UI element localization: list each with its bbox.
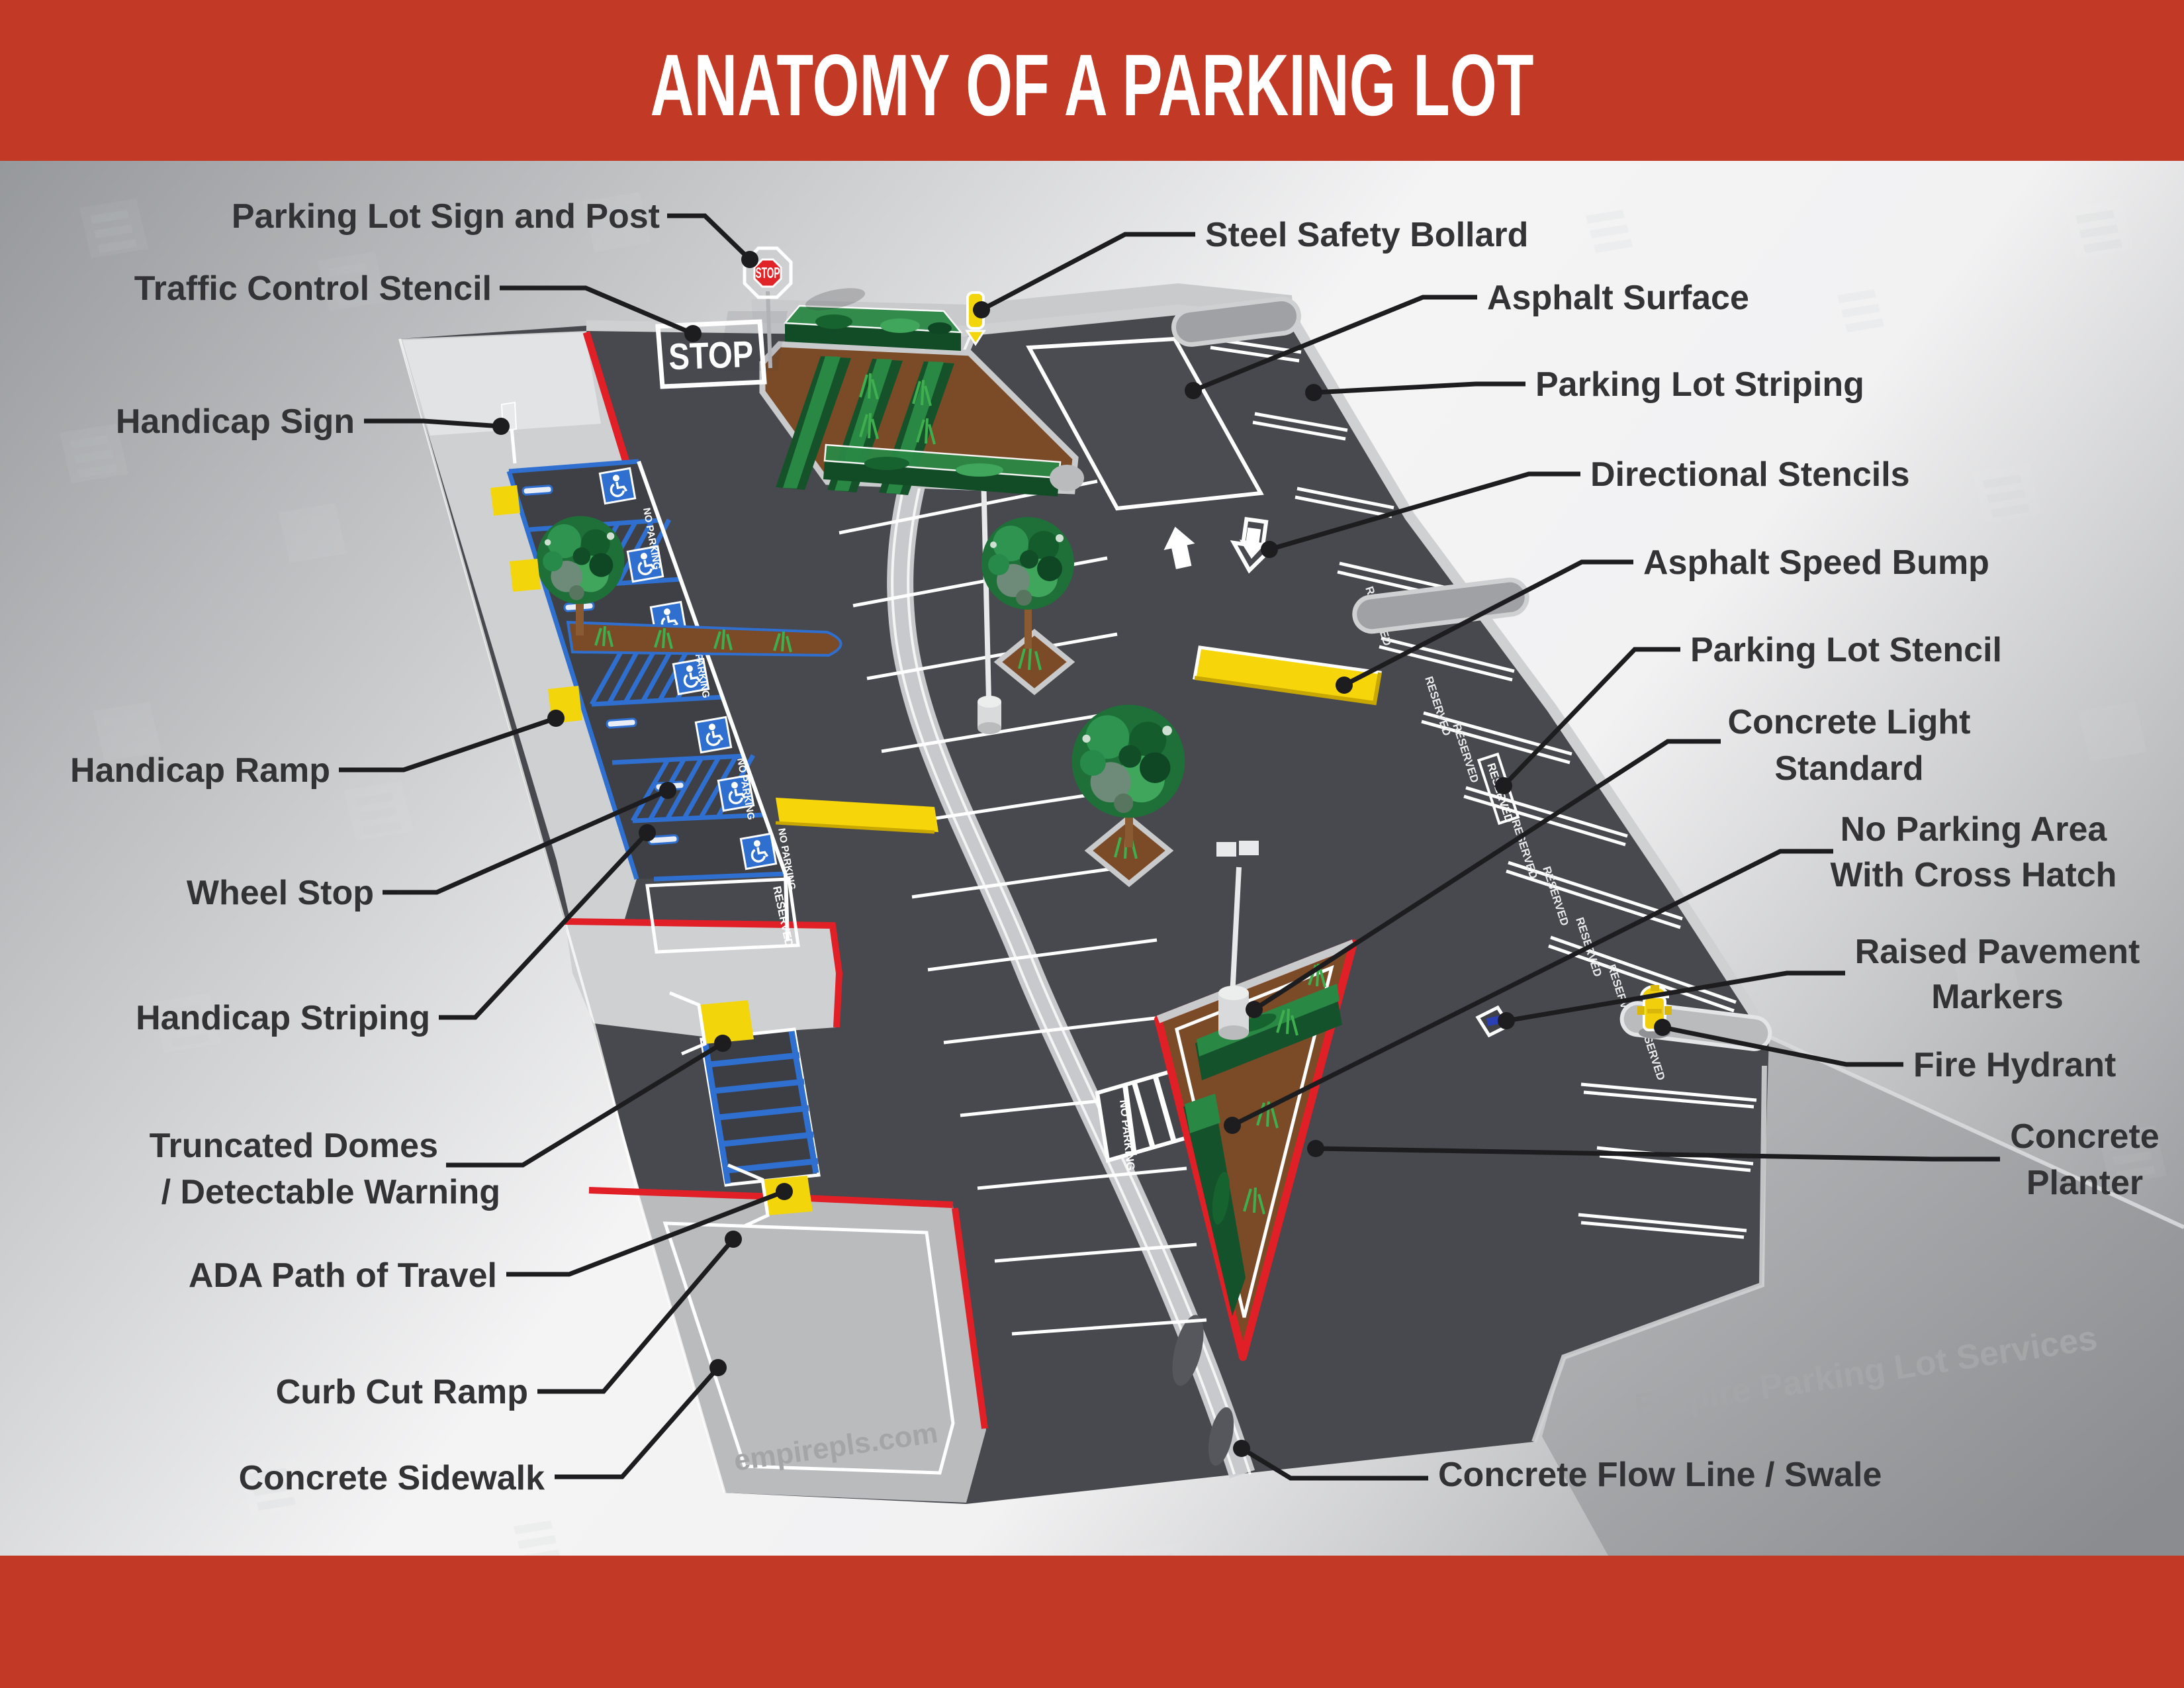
svg-text:Standard: Standard: [1774, 749, 1923, 788]
svg-text:Asphalt Surface: Asphalt Surface: [1487, 279, 1749, 317]
svg-text:Handicap Striping: Handicap Striping: [136, 999, 430, 1037]
svg-text:/ Detectable Warning: / Detectable Warning: [161, 1173, 500, 1211]
svg-text:Steel Safety Bollard: Steel Safety Bollard: [1205, 216, 1528, 254]
svg-text:Truncated Domes: Truncated Domes: [150, 1127, 438, 1165]
svg-text:Parking Lot Sign and Post: Parking Lot Sign and Post: [232, 197, 660, 236]
svg-text:Concrete Sidewalk: Concrete Sidewalk: [239, 1459, 545, 1497]
svg-text:Concrete Flow Line / Swale: Concrete Flow Line / Swale: [1438, 1456, 1882, 1494]
svg-text:Raised Pavement: Raised Pavement: [1855, 933, 2140, 971]
svg-text:Concrete Light: Concrete Light: [1728, 703, 1971, 741]
svg-text:Planter: Planter: [2026, 1164, 2143, 1202]
svg-text:No Parking Area: No Parking Area: [1841, 810, 2108, 849]
svg-text:Markers: Markers: [1931, 978, 2063, 1016]
svg-text:Directional Stencils: Directional Stencils: [1590, 455, 1910, 494]
svg-text:Fire Hydrant: Fire Hydrant: [1913, 1046, 2116, 1084]
svg-text:With Cross Hatch: With Cross Hatch: [1831, 856, 2117, 894]
svg-text:Wheel Stop: Wheel Stop: [187, 874, 374, 912]
svg-text:STOP: STOP: [668, 333, 754, 377]
svg-text:Traffic Control Stencil: Traffic Control Stencil: [134, 269, 492, 308]
svg-text:Parking Lot Striping: Parking Lot Striping: [1535, 365, 1864, 404]
svg-text:ANATOMY OF A PARKING LOT: ANATOMY OF A PARKING LOT: [651, 36, 1534, 134]
svg-text:ADA Path of Travel: ADA Path of Travel: [189, 1256, 497, 1295]
svg-text:Parking Lot Stencil: Parking Lot Stencil: [1690, 631, 2002, 669]
svg-text:Handicap Ramp: Handicap Ramp: [70, 751, 330, 790]
svg-text:Asphalt Speed Bump: Asphalt Speed Bump: [1643, 543, 1989, 582]
svg-text:Curb Cut Ramp: Curb Cut Ramp: [276, 1373, 528, 1411]
svg-text:STOP: STOP: [756, 264, 780, 281]
svg-text:Concrete: Concrete: [2010, 1117, 2159, 1156]
svg-text:Handicap Sign: Handicap Sign: [116, 402, 355, 441]
